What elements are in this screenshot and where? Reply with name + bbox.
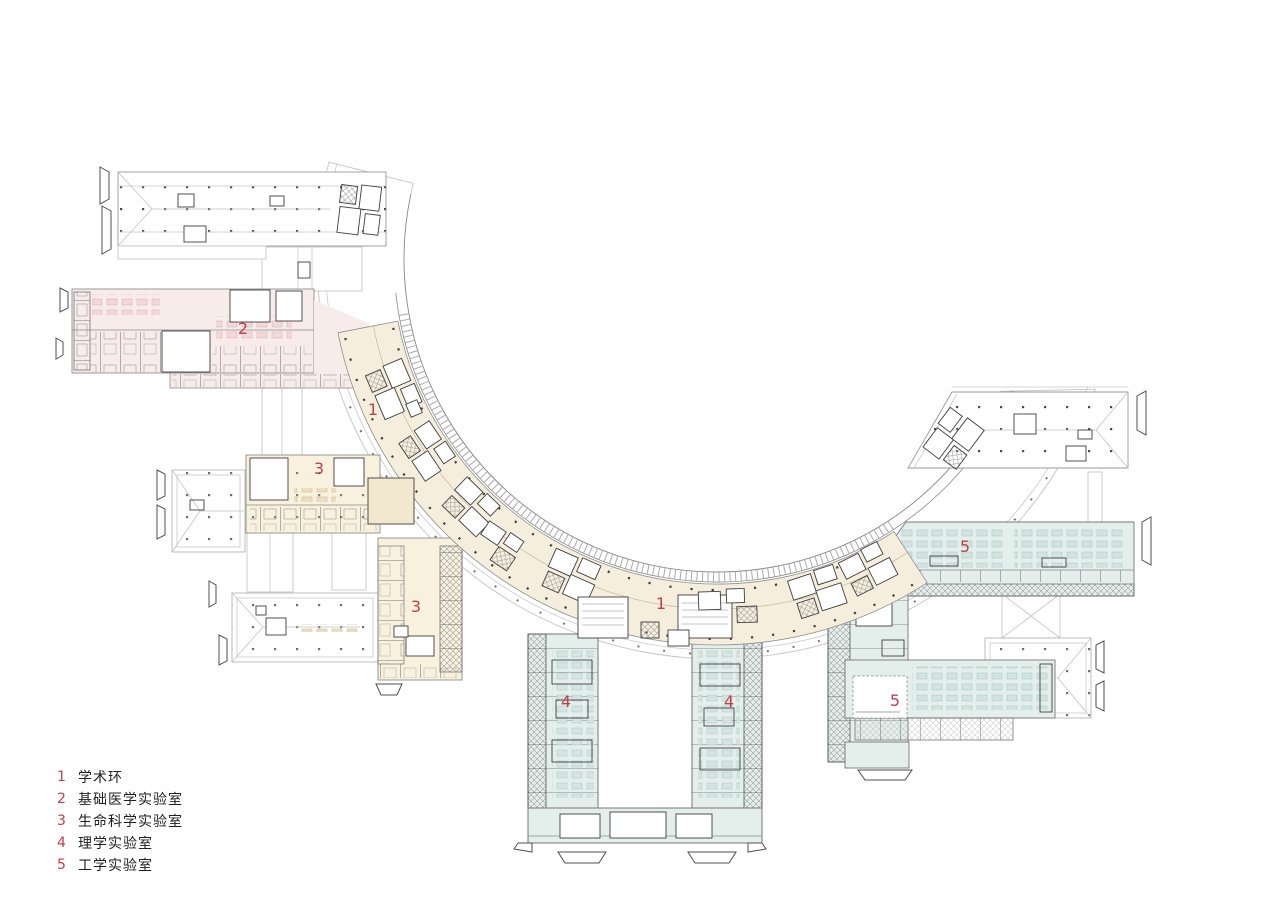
legend-item-4: 4理学实验室 bbox=[57, 832, 183, 854]
wing-life-science-labs-upper bbox=[246, 455, 380, 533]
wing-life-science-labs-lower bbox=[376, 538, 462, 695]
legend-label: 工学实验室 bbox=[78, 855, 153, 875]
connector-east bbox=[1088, 472, 1102, 524]
wing-science-labs bbox=[514, 634, 766, 863]
legend-item-1: 1学术环 bbox=[57, 766, 183, 788]
legend-number: 1 bbox=[57, 769, 71, 785]
legend-item-2: 2基础医学实验室 bbox=[57, 788, 183, 810]
legend-item-3: 3生命科学实验室 bbox=[57, 810, 183, 832]
legend-number: 2 bbox=[57, 791, 71, 807]
legend-number: 3 bbox=[57, 813, 71, 829]
legend-item-5: 5工学实验室 bbox=[57, 854, 183, 876]
courtyard-block-west-lower bbox=[232, 593, 378, 662]
legend-label: 理学实验室 bbox=[78, 833, 153, 853]
legend-label: 基础医学实验室 bbox=[78, 789, 183, 809]
legend-label: 生命科学实验室 bbox=[78, 811, 183, 831]
floor-plan-drawing bbox=[0, 0, 1280, 919]
legend: 1学术环2基础医学实验室3生命科学实验室4理学实验室5工学实验室 bbox=[57, 766, 183, 876]
floor-plan: 112334455 1学术环2基础医学实验室3生命科学实验室4理学实验室5工学实… bbox=[0, 0, 1280, 919]
legend-number: 5 bbox=[57, 857, 71, 873]
courtyard-block-west-upper bbox=[172, 470, 245, 552]
legend-number: 4 bbox=[57, 835, 71, 851]
legend-label: 学术环 bbox=[78, 767, 123, 787]
